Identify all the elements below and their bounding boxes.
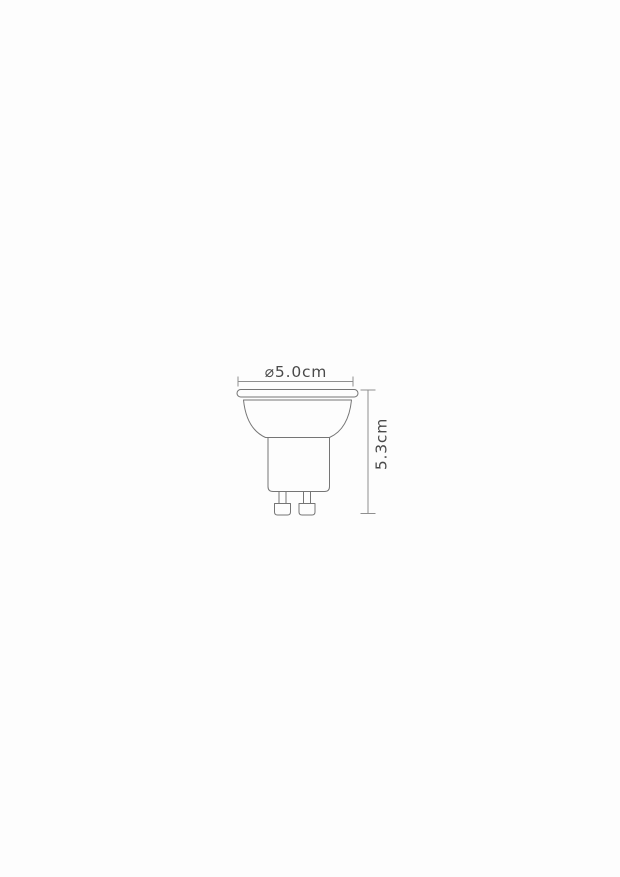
pin-left-cap bbox=[275, 504, 291, 516]
pin-left-neck bbox=[279, 492, 286, 504]
drawing-canvas: ⌀5.0cm 5.3cm bbox=[0, 0, 620, 877]
width-dimension-label: ⌀5.0cm bbox=[265, 363, 327, 381]
pin-right-cap bbox=[299, 504, 315, 516]
width-dimension: ⌀5.0cm bbox=[238, 363, 353, 387]
gu10-pin-left bbox=[275, 492, 291, 515]
bulb-body bbox=[268, 438, 330, 492]
pin-right-neck bbox=[304, 492, 311, 504]
bulb-rim bbox=[237, 390, 358, 398]
bulb-drawing bbox=[237, 390, 358, 516]
height-dimension: 5.3cm bbox=[361, 390, 391, 514]
gu10-pin-right bbox=[299, 492, 315, 515]
height-dimension-label: 5.3cm bbox=[373, 418, 391, 470]
bulb-reflector bbox=[244, 400, 352, 438]
bulb-dimension-diagram: ⌀5.0cm 5.3cm bbox=[0, 0, 620, 877]
